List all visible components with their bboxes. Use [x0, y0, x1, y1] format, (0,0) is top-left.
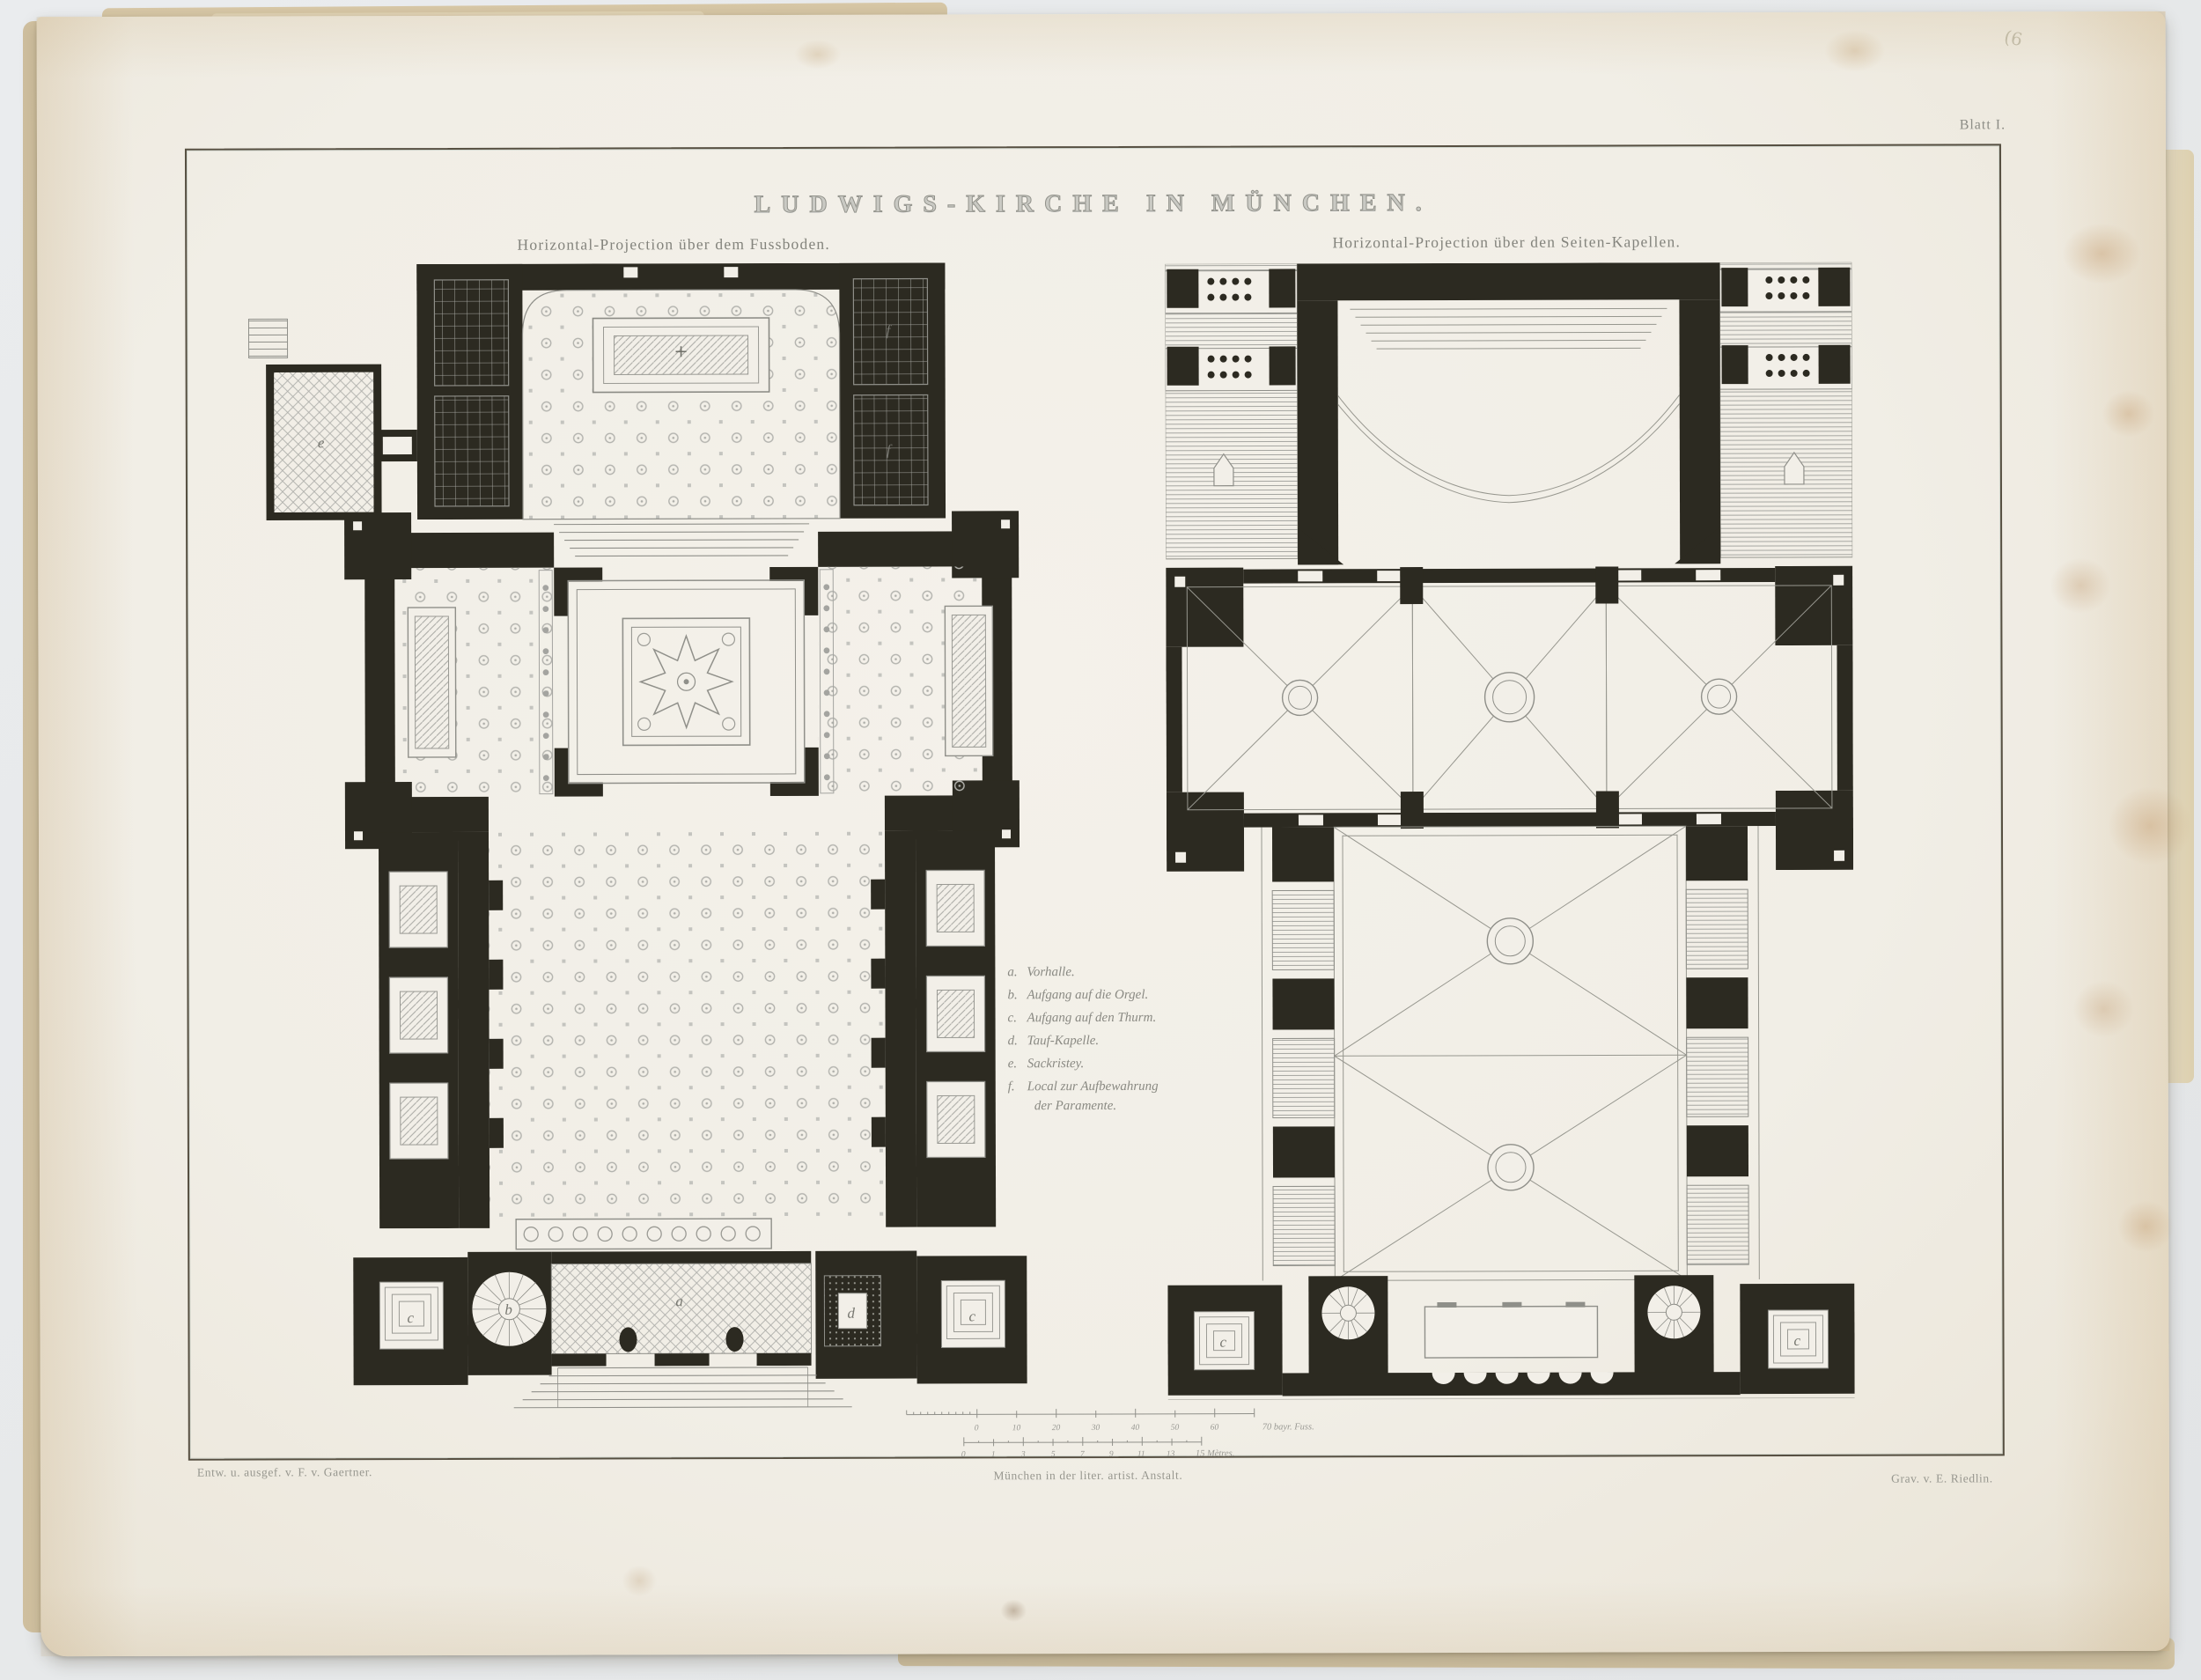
- right-plan-subtitle: Horizontal-Projection über den Seiten-Ka…: [1304, 232, 1709, 252]
- foxing-stain: [1000, 1599, 1027, 1622]
- floor-plan-upper: c c: [1165, 262, 1854, 1400]
- svg-text:11: 11: [1137, 1450, 1145, 1459]
- foxing-stain: [1824, 30, 1886, 72]
- upper-transept: [1166, 566, 1853, 872]
- svg-text:9: 9: [1109, 1450, 1114, 1459]
- svg-text:c: c: [407, 1309, 414, 1326]
- foxing-stain: [2102, 390, 2155, 438]
- plate-sheet: Blatt I. (6 LUDWIGS-KIRCHE IN MÜNCHEN. H…: [37, 11, 2170, 1656]
- svg-text:3: 3: [1020, 1450, 1026, 1459]
- edge-stain-bottom: [40, 1581, 2169, 1656]
- entrance-front: c c b: [353, 1250, 1027, 1408]
- svg-text:7: 7: [1080, 1450, 1086, 1459]
- svg-text:5: 5: [1051, 1450, 1056, 1459]
- svg-text:30: 30: [1091, 1424, 1100, 1433]
- chancel-block: f f: [416, 262, 946, 519]
- foxing-stain: [2072, 980, 2134, 1038]
- svg-text:d: d: [847, 1305, 855, 1322]
- svg-text:70 bayr. Fuss.: 70 bayr. Fuss.: [1262, 1422, 1314, 1432]
- svg-text:c: c: [968, 1308, 975, 1324]
- legend-item: f.Local zur Aufbewahrung: [1008, 1079, 1228, 1095]
- upper-nave: [1262, 826, 1759, 1280]
- svg-text:60: 60: [1211, 1424, 1219, 1433]
- foxing-stain: [622, 1565, 657, 1596]
- feet-scale: [907, 1409, 1255, 1418]
- legend-item: c.Aufgang auf den Thurm.: [1008, 1011, 1228, 1027]
- edge-stain-left: [37, 17, 138, 1656]
- plate-border-frame: LUDWIGS-KIRCHE IN MÜNCHEN. Horizontal-Pr…: [185, 144, 2005, 1460]
- left-plan-subtitle: Horizontal-Projection über dem Fussboden…: [471, 235, 876, 254]
- photo-background: Blatt I. (6 LUDWIGS-KIRCHE IN MÜNCHEN. H…: [0, 0, 2201, 1680]
- nave-block: [379, 830, 996, 1249]
- svg-text:b: b: [504, 1301, 512, 1318]
- credit-designer: Entw. u. ausgef. v. F. v. Gaertner.: [197, 1465, 372, 1480]
- svg-text:40: 40: [1131, 1424, 1140, 1433]
- svg-text:c: c: [1219, 1334, 1226, 1351]
- plate-title: LUDWIGS-KIRCHE IN MÜNCHEN.: [187, 188, 1999, 220]
- foxing-stain: [794, 40, 842, 70]
- svg-text:10: 10: [1012, 1424, 1021, 1433]
- sacristy-annex: e: [248, 319, 417, 516]
- legend-item-continuation: der Paramente.: [1008, 1099, 1228, 1115]
- edge-stain-right: [2051, 11, 2170, 1651]
- svg-text:0: 0: [975, 1424, 979, 1433]
- svg-text:13: 13: [1167, 1450, 1175, 1459]
- legend-item: d.Tauf-Kapelle.: [1008, 1034, 1228, 1050]
- floor-plan-ground: f f e: [245, 262, 1031, 1411]
- svg-text:0: 0: [961, 1450, 966, 1459]
- svg-text:1: 1: [991, 1450, 996, 1459]
- svg-text:a: a: [675, 1293, 683, 1309]
- upper-chancel-block: [1165, 262, 1852, 565]
- legend-item: e.Sackristey.: [1008, 1057, 1228, 1072]
- credit-engraver: Grav. v. E. Riedlin.: [1854, 1471, 2030, 1486]
- foxing-stain: [2062, 223, 2141, 284]
- plate-number: Blatt I.: [1912, 117, 2053, 133]
- svg-text:e: e: [318, 434, 325, 451]
- transept-block: [344, 511, 1020, 849]
- edge-stain-top: [37, 11, 2166, 78]
- plan-legend: a.Vorhalle. b.Aufgang auf die Orgel. c.A…: [1007, 965, 1227, 1123]
- svg-text:c: c: [1793, 1332, 1800, 1349]
- credit-publisher: München in der liter. artist. Anstalt.: [903, 1468, 1273, 1483]
- chancel-steps: [554, 524, 809, 556]
- pencil-mark: (6: [2002, 26, 2024, 50]
- legend-item: a.Vorhalle.: [1007, 965, 1227, 981]
- svg-text:20: 20: [1052, 1424, 1061, 1433]
- foxing-stain: [2050, 557, 2111, 614]
- legend-item: b.Aufgang auf die Orgel.: [1007, 988, 1227, 1004]
- svg-text:50: 50: [1171, 1424, 1180, 1433]
- foxing-stain: [2117, 1200, 2174, 1253]
- metre-scale: [964, 1437, 1202, 1447]
- upper-entrance: c c: [1167, 1275, 1854, 1400]
- scale-bars: 0 10 20 30 40 50 60 70 bayr. Fuss. 0 1 3…: [900, 1401, 1349, 1467]
- svg-text:15 Mètres.: 15 Mètres.: [1196, 1449, 1235, 1459]
